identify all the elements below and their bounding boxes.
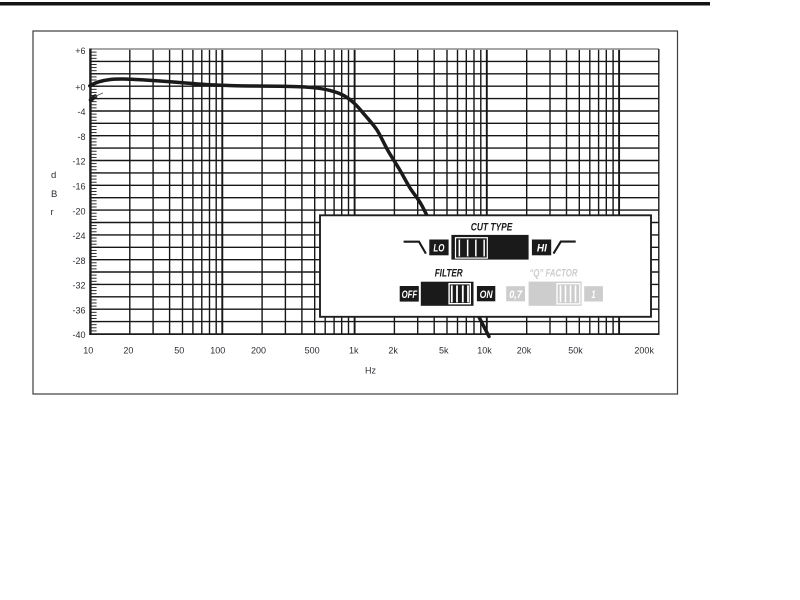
svg-text:HI: HI xyxy=(537,243,548,255)
svg-text:1k: 1k xyxy=(349,346,359,356)
svg-text:-28: -28 xyxy=(72,256,85,266)
svg-text:200: 200 xyxy=(251,346,266,356)
svg-text:d: d xyxy=(51,170,56,181)
svg-text:+0: +0 xyxy=(75,82,85,92)
svg-text:50: 50 xyxy=(174,346,184,356)
svg-text:FILTER: FILTER xyxy=(435,268,464,280)
svg-text:-16: -16 xyxy=(72,182,85,192)
svg-text:ON: ON xyxy=(480,289,494,301)
svg-text:100: 100 xyxy=(210,346,225,356)
svg-text:OFF: OFF xyxy=(402,289,418,301)
svg-text:B: B xyxy=(51,189,57,200)
svg-text:LO: LO xyxy=(433,243,444,255)
svg-text:10: 10 xyxy=(83,346,93,356)
svg-text:2k: 2k xyxy=(388,346,398,356)
svg-text:-36: -36 xyxy=(72,305,85,315)
svg-text:5k: 5k xyxy=(439,346,449,356)
svg-text:+6: +6 xyxy=(75,46,85,56)
svg-text:50k: 50k xyxy=(568,346,583,356)
svg-text:1: 1 xyxy=(592,289,596,301)
svg-text:Hz: Hz xyxy=(365,366,376,376)
svg-text:“Q” FACTOR: “Q” FACTOR xyxy=(530,267,579,279)
svg-text:r: r xyxy=(51,207,54,218)
svg-text:20k: 20k xyxy=(517,346,532,356)
svg-text:-4: -4 xyxy=(77,107,85,117)
svg-text:500: 500 xyxy=(305,346,320,356)
svg-text:-12: -12 xyxy=(72,157,85,167)
svg-text:200k: 200k xyxy=(634,346,654,356)
svg-text:-8: -8 xyxy=(77,132,85,142)
svg-text:-24: -24 xyxy=(72,231,85,241)
svg-text:10k: 10k xyxy=(477,346,492,356)
svg-text:0,7: 0,7 xyxy=(509,289,523,301)
svg-text:CUT TYPE: CUT TYPE xyxy=(471,222,513,234)
svg-text:-40: -40 xyxy=(72,330,85,340)
svg-text:-32: -32 xyxy=(72,281,85,291)
svg-text:20: 20 xyxy=(123,346,133,356)
svg-text:-20: -20 xyxy=(72,206,85,216)
